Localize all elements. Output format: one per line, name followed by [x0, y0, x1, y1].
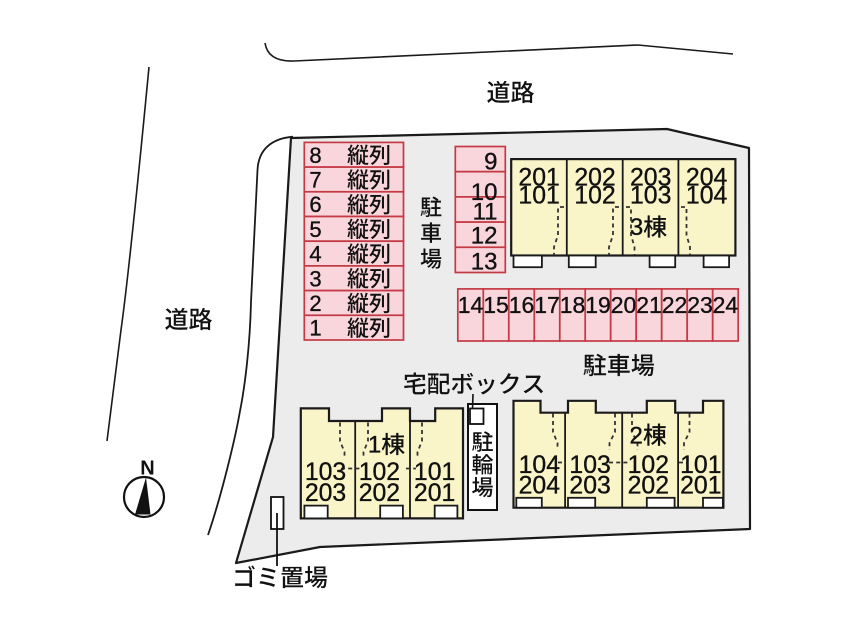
- svg-text:103: 103: [630, 182, 671, 209]
- svg-text:N: N: [140, 458, 154, 480]
- svg-text:17: 17: [534, 292, 560, 318]
- svg-text:16: 16: [509, 292, 535, 318]
- svg-text:1: 1: [309, 316, 321, 341]
- svg-text:15: 15: [483, 292, 509, 318]
- svg-text:101: 101: [518, 182, 559, 209]
- svg-text:5: 5: [309, 217, 321, 242]
- svg-text:202: 202: [628, 472, 669, 499]
- svg-text:203: 203: [305, 480, 346, 507]
- svg-text:204: 204: [519, 472, 561, 499]
- svg-text:201: 201: [414, 480, 455, 507]
- svg-text:201: 201: [680, 472, 721, 499]
- svg-text:203: 203: [569, 472, 610, 499]
- svg-text:1: 1: [368, 432, 381, 459]
- svg-text:22: 22: [662, 292, 688, 318]
- svg-text:9: 9: [484, 149, 497, 176]
- svg-text:104: 104: [686, 182, 728, 209]
- svg-text:2: 2: [630, 422, 643, 449]
- svg-text:2: 2: [309, 291, 321, 316]
- svg-text:19: 19: [585, 292, 611, 318]
- svg-text:12: 12: [471, 222, 498, 249]
- svg-text:18: 18: [560, 292, 586, 318]
- svg-text:202: 202: [359, 480, 400, 507]
- svg-text:8: 8: [309, 143, 321, 168]
- svg-text:13: 13: [471, 249, 498, 276]
- svg-text:3: 3: [630, 214, 643, 241]
- svg-text:24: 24: [713, 292, 739, 318]
- svg-text:23: 23: [687, 292, 713, 318]
- svg-text:7: 7: [309, 168, 321, 193]
- svg-text:21: 21: [636, 292, 662, 318]
- svg-text:3: 3: [309, 266, 321, 291]
- svg-text:14: 14: [458, 292, 484, 318]
- svg-text:4: 4: [309, 242, 321, 267]
- svg-text:6: 6: [309, 192, 321, 217]
- svg-text:102: 102: [574, 182, 615, 209]
- svg-text:20: 20: [611, 292, 637, 318]
